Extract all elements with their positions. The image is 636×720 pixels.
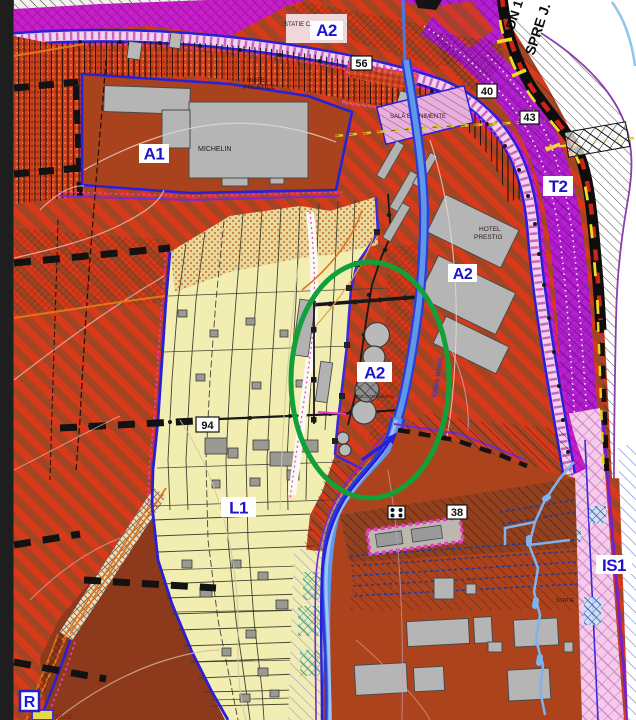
svg-text:REG.COMBUSTOIL: REG.COMBUSTOIL <box>354 394 395 399</box>
svg-text:IS1: IS1 <box>602 556 626 575</box>
svg-text:T2: T2 <box>549 177 568 196</box>
svg-text:94: 94 <box>201 420 214 432</box>
svg-text:A2: A2 <box>316 21 337 40</box>
svg-text:STATIE: STATIE <box>556 598 575 604</box>
svg-text:56: 56 <box>355 58 367 70</box>
svg-text:PRESTICE: PRESTICE <box>243 84 276 91</box>
svg-text:40: 40 <box>481 86 493 98</box>
svg-text:HOTEL: HOTEL <box>247 77 269 84</box>
svg-text:A2: A2 <box>453 266 473 283</box>
svg-text:L1: L1 <box>229 499 248 518</box>
svg-text:STATIE C.: STATIE C. <box>284 22 312 28</box>
svg-text:A1: A1 <box>144 145 165 164</box>
svg-text:R: R <box>24 694 36 711</box>
svg-text:SILOZ: SILOZ <box>55 715 73 720</box>
svg-text:HOTEL: HOTEL <box>479 226 501 233</box>
svg-text:38: 38 <box>451 507 463 519</box>
svg-text:A2: A2 <box>364 364 385 383</box>
svg-text:MICHELIN: MICHELIN <box>198 146 231 153</box>
svg-text:43: 43 <box>523 112 535 124</box>
svg-text:PRESTIG: PRESTIG <box>474 234 503 241</box>
